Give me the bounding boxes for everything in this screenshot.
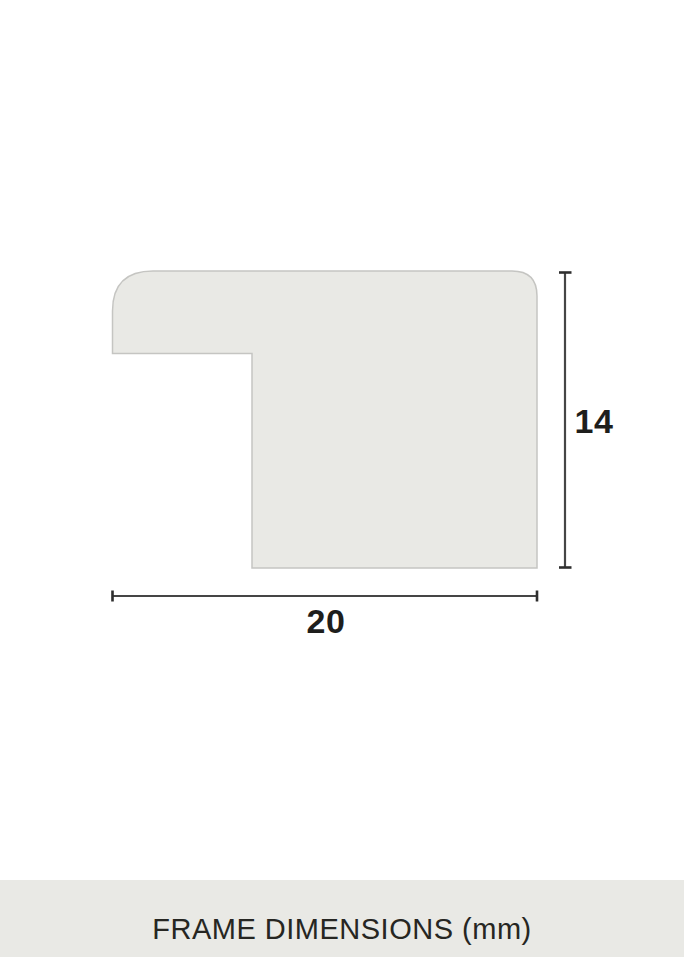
profile-diagram-canvas: 14 20 bbox=[0, 0, 684, 880]
footer-title: FRAME DIMENSIONS (mm) bbox=[152, 913, 531, 946]
height-dimension-label: 14 bbox=[575, 402, 614, 440]
frame-dimensions-figure: 14 20 FRAME DIMENSIONS (mm) bbox=[0, 0, 684, 957]
width-dimension: 20 bbox=[113, 591, 538, 641]
width-dimension-label: 20 bbox=[307, 602, 346, 640]
height-dimension: 14 bbox=[559, 273, 613, 568]
footer-bar: FRAME DIMENSIONS (mm) bbox=[0, 880, 684, 957]
frame-profile-shape bbox=[113, 271, 538, 568]
